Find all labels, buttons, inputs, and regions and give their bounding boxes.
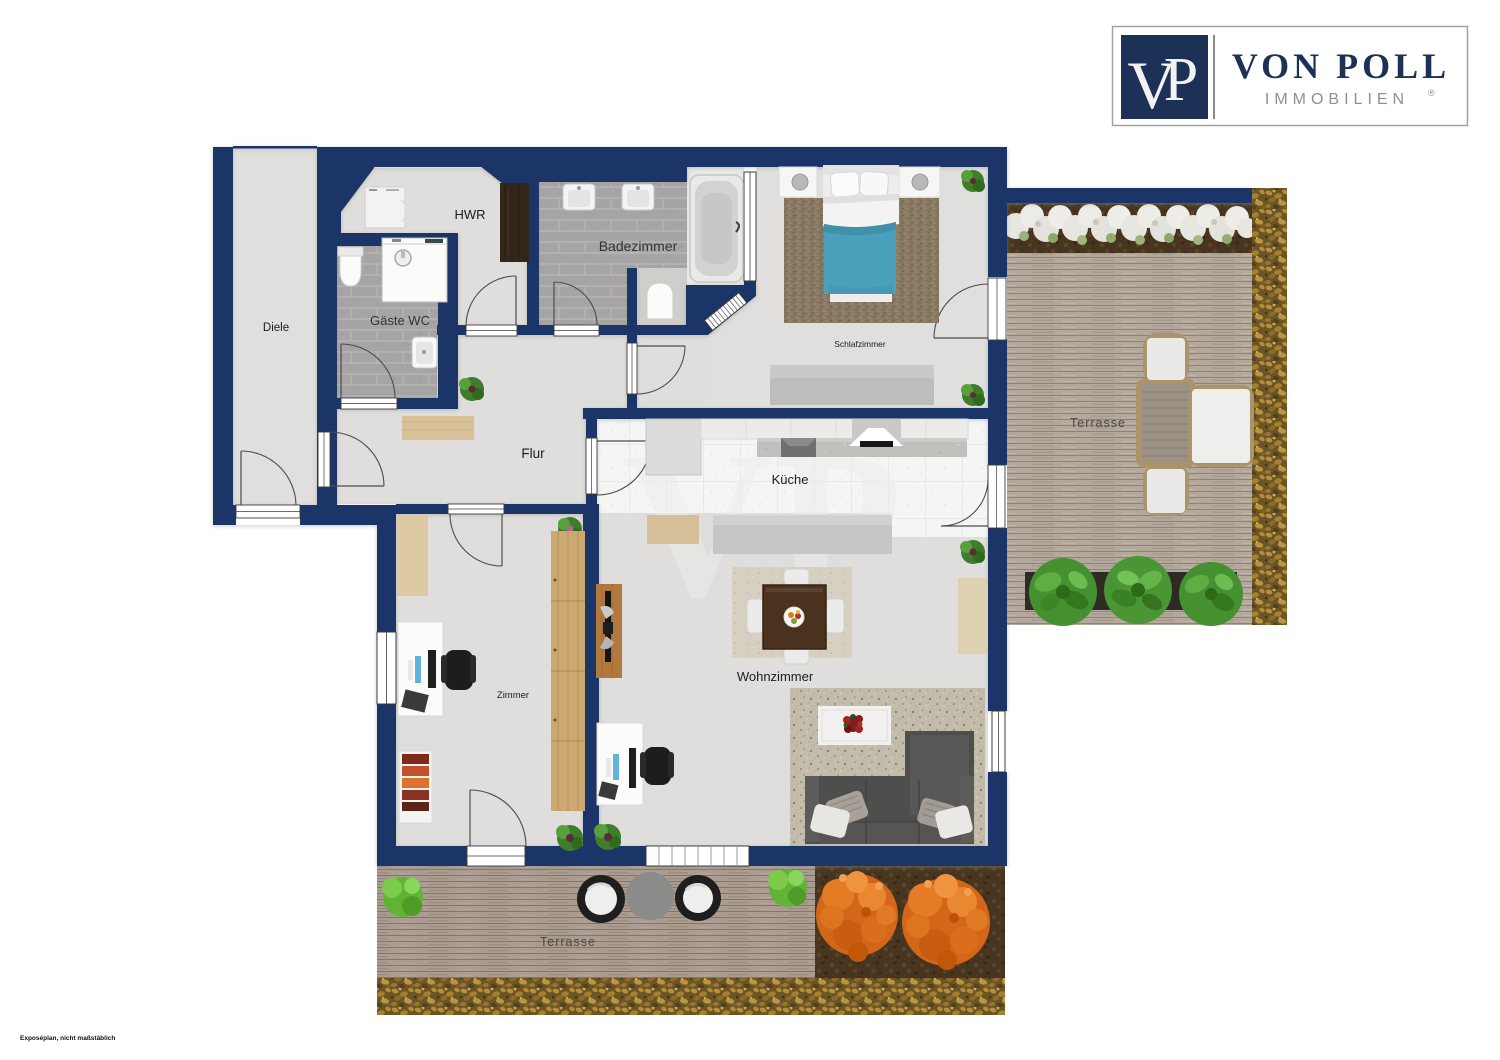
svg-text:VON POLL: VON POLL [1232, 46, 1450, 86]
svg-text:Badezimmer: Badezimmer [599, 238, 678, 254]
svg-text:IMMOBILIEN: IMMOBILIEN [1265, 91, 1409, 108]
svg-text:®: ® [1428, 88, 1435, 98]
svg-text:Terrasse: Terrasse [540, 935, 596, 949]
svg-text:Diele: Diele [263, 322, 289, 334]
svg-text:Terrasse: Terrasse [1070, 416, 1126, 430]
svg-text:Küche: Küche [772, 472, 809, 487]
svg-text:Gäste WC: Gäste WC [370, 313, 430, 328]
svg-text:P: P [1164, 46, 1198, 114]
svg-text:HWR: HWR [454, 207, 485, 222]
svg-text:Flur: Flur [521, 446, 545, 461]
svg-text:Zimmer: Zimmer [497, 690, 529, 701]
svg-text:Exposéplan, nicht maßstäblich: Exposéplan, nicht maßstäblich [20, 1035, 115, 1042]
svg-text:Schlafzimmer: Schlafzimmer [834, 339, 886, 349]
svg-text:Wohnzimmer: Wohnzimmer [737, 669, 814, 684]
